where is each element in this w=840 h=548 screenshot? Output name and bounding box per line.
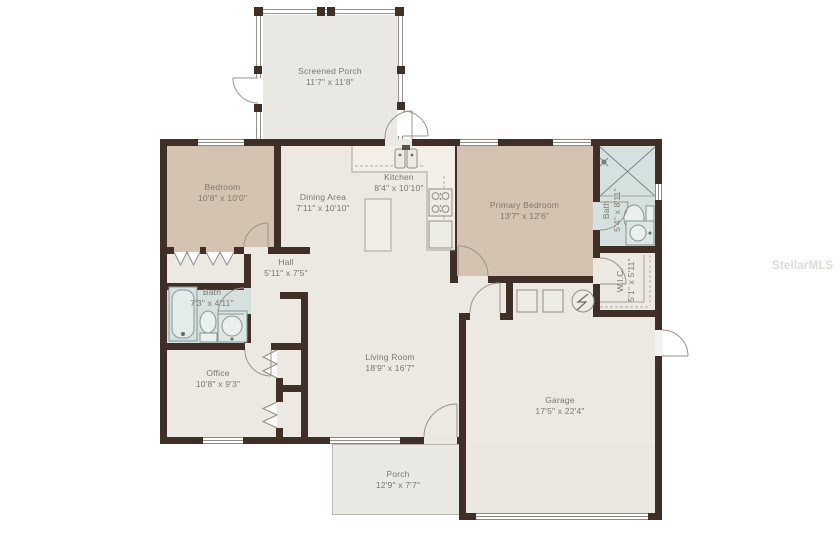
wall-bath-left xyxy=(593,230,600,258)
wall-office-right xyxy=(276,428,283,437)
wall-closet-divider xyxy=(283,385,301,392)
porch-post xyxy=(254,104,262,112)
wall-hall-top xyxy=(268,247,310,254)
screen-door-gap-right xyxy=(397,110,404,136)
window-bath xyxy=(655,184,662,200)
porch-post xyxy=(397,66,405,74)
label-screened-porch: Screened Porch 11'7" x 11'8" xyxy=(270,66,390,88)
label-wic: W.I.C. 5'1" x 5'11" xyxy=(615,240,637,320)
porch-post xyxy=(254,7,263,16)
wall-living-garage xyxy=(500,313,513,320)
wall-office-top xyxy=(160,343,245,350)
stellar-mls-watermark: StellarMLS xyxy=(772,260,840,272)
door-gap-kitchen-porch xyxy=(385,139,412,146)
porch-post xyxy=(317,7,325,16)
wall-hall-bottom xyxy=(280,292,301,299)
wall-primary-bottom xyxy=(450,276,458,283)
label-hall: Hall 5'11" x 7'5" xyxy=(246,257,326,279)
wall-office-right xyxy=(276,378,283,402)
label-garage: Garage 17'5" x 22'4" xyxy=(495,395,625,417)
porch-post xyxy=(397,102,405,110)
door-gap-living-porch xyxy=(424,437,457,444)
label-por​ch: Porch 12'9" x 7'7" xyxy=(336,469,460,491)
wall-closetA-top xyxy=(283,343,301,350)
door-gap-office xyxy=(245,343,271,350)
wall-bedroom-bottom xyxy=(234,247,244,254)
label-dining-area: Dining Area 7'11" x 10'10" xyxy=(263,192,383,214)
label-living-room: Living Room 18'9" x 16'7" xyxy=(330,352,450,374)
porch-post xyxy=(327,7,335,16)
garage-floor xyxy=(459,444,662,520)
door-gap-primary xyxy=(458,276,488,283)
sliding-door-living xyxy=(330,437,400,444)
door-gap-wic xyxy=(593,258,600,284)
screen-door-gap-left xyxy=(255,78,262,104)
label-kitchen: Kitchen 8'4" x 10'10" xyxy=(349,172,449,194)
label-bath: Bath 5'4" x 8'11" xyxy=(601,170,623,250)
wall-bath2-right xyxy=(244,314,251,343)
porch-post xyxy=(395,7,404,16)
label-primary-bedroom: Primary Bedroom 13'7" x 12'6" xyxy=(452,200,597,222)
window-office xyxy=(203,437,243,444)
door-gap-bedroom xyxy=(244,247,268,254)
wall-central xyxy=(301,292,308,437)
window-primary-2 xyxy=(553,139,591,146)
wall-living-garage xyxy=(459,313,470,320)
wall-bedroom-bottom xyxy=(160,247,174,254)
door-gap-garage-entry xyxy=(470,313,500,320)
screen-wall-left xyxy=(256,9,261,140)
garage-door xyxy=(476,513,648,520)
door-gap-garage-side xyxy=(655,330,662,356)
floor-plan: Screened Porch 11'7" x 11'8" Bedroom 10'… xyxy=(0,0,840,548)
label-bath2: Bath 7'3" x 4'11" xyxy=(172,287,252,309)
wall-garage-left xyxy=(459,320,466,513)
wall-bath-left xyxy=(593,146,600,202)
wall-primary-bottom xyxy=(488,276,593,283)
window-primary-1 xyxy=(460,139,498,146)
wall-office-top xyxy=(271,343,283,350)
window-bedroom xyxy=(198,139,244,146)
label-office: Office 10'8" x 9'3" xyxy=(160,368,276,390)
wall-bedroom-bottom xyxy=(200,247,206,254)
porch-post xyxy=(254,66,262,74)
